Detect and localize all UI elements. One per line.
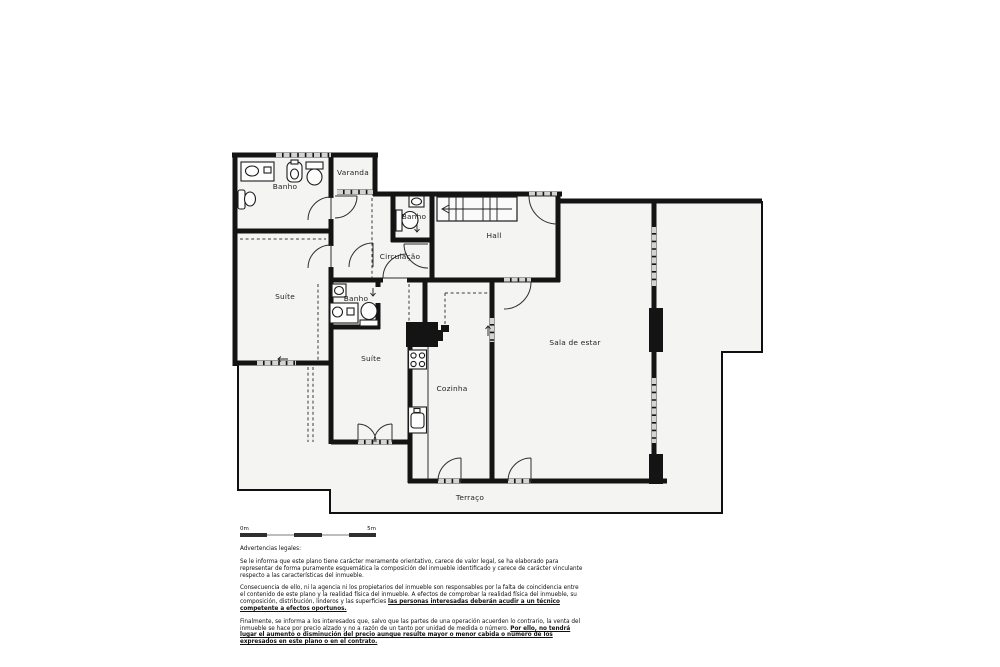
stove-icon <box>409 350 427 369</box>
toilet-icon <box>360 303 378 327</box>
legal-disclaimer: Advertencias legales: Se le informa que … <box>240 546 585 652</box>
wall-pillar <box>649 308 663 352</box>
wall-pillar <box>649 454 663 484</box>
room-label-banho3: Banho <box>344 294 369 303</box>
room-label-suite2: Suíte <box>361 354 381 363</box>
vanity-sink-icon <box>330 303 358 323</box>
legal-heading: Advertencias legales: <box>240 546 585 553</box>
room-label-sala: Sala de estar <box>549 338 601 347</box>
legal-paragraph-3: Finalmente, se informa a los interesados… <box>240 619 585 646</box>
floor-plan-page: Banho Varanda Banho Hall Circulação Suít… <box>0 0 1000 667</box>
kitchen-sink-icon <box>409 407 427 433</box>
scale-bar-segments <box>240 533 376 537</box>
room-label-cozinha: Cozinha <box>437 384 468 393</box>
bidet-icon <box>287 160 302 182</box>
room-label-banho1: Banho <box>273 182 298 191</box>
kitchen-chimney <box>406 322 438 347</box>
room-label-suite1: Suíte <box>275 292 295 301</box>
scale-bar: 0m 5m <box>240 526 376 537</box>
room-label-varanda: Varanda <box>337 168 369 177</box>
stairs-icon <box>437 197 517 221</box>
wall-sink-icon <box>409 196 424 207</box>
room-label-terraco: Terraço <box>455 493 485 502</box>
vanity-sink-icon <box>241 162 274 181</box>
room-label-circulacao: Circulação <box>380 252 421 261</box>
scale-end-label: 5m <box>367 526 376 532</box>
scale-start-label: 0m <box>240 526 249 532</box>
legal-paragraph-2: Consecuencia de ello, ni la agencia ni l… <box>240 585 585 612</box>
legal-paragraph-1: Se le informa que este plano tiene carác… <box>240 559 585 580</box>
room-label-hall: Hall <box>487 231 502 240</box>
toilet-icon <box>306 162 323 185</box>
room-label-banho2: Banho <box>402 212 427 221</box>
